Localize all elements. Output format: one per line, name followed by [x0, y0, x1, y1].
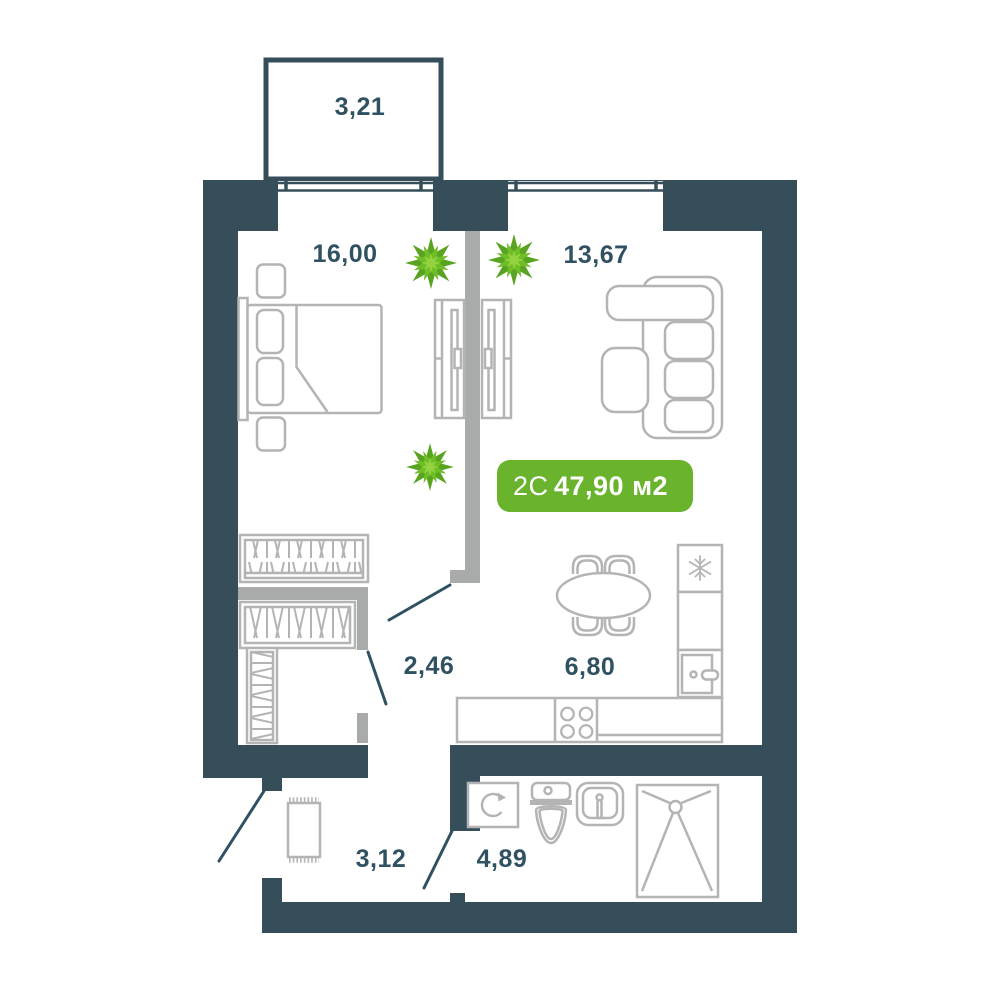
wardrobe-hatch [245, 540, 363, 573]
sofa-cushion [607, 286, 713, 320]
toilet [530, 783, 572, 843]
oven-handle [702, 671, 718, 680]
dining-set [557, 556, 650, 635]
hallway-area-label: 3,12 [356, 845, 407, 873]
window [278, 181, 433, 231]
nightstand [257, 265, 285, 298]
nightstand [257, 418, 285, 451]
closet-wall-top [238, 587, 368, 600]
shower-drain-icon [670, 801, 682, 813]
closet-wall-right [357, 600, 368, 650]
living-area-label: 13,67 [563, 241, 628, 269]
wall-left [203, 180, 238, 778]
wardrobe-hatch [251, 652, 273, 740]
sofa-cushion [665, 400, 713, 432]
wall-bathroom-top [450, 745, 762, 776]
chair [573, 556, 602, 574]
cabinet-handle [485, 349, 492, 368]
ottoman [602, 348, 648, 412]
closet-door-line [368, 652, 386, 704]
wardrobe-bedroom [240, 535, 368, 582]
floor-plan: 3,21 16,00 13,67 2,46 6,80 3,12 4,89 2С … [0, 0, 1000, 1000]
fridge [678, 545, 722, 592]
closet-wall-stub [357, 713, 368, 743]
bedroom-area-label: 16,00 [312, 240, 377, 268]
kitchen-area-label: 6,80 [565, 653, 616, 681]
svg-text:2С 47,90 м2: 2С 47,90 м2 [513, 471, 668, 501]
plant-icon [488, 234, 540, 286]
cabinet-partition-right [482, 300, 511, 418]
badge-unit-type: 2С [513, 471, 549, 501]
entrance-door-line [219, 791, 264, 861]
corridor-area-label: 2,46 [404, 652, 455, 680]
bathroom-area-label: 4,89 [477, 845, 528, 873]
oven-unit [678, 650, 722, 697]
wall-right [762, 180, 797, 933]
wardrobe-hatch [245, 607, 350, 643]
chair [605, 556, 634, 574]
washing-machine [468, 783, 518, 827]
total-area-badge: 2С 47,90 м2 [497, 460, 693, 512]
entrance-door-jamb [262, 778, 282, 791]
bathroom-door-line [424, 831, 452, 888]
rug [288, 800, 320, 860]
oven-knob [691, 672, 697, 678]
kitchen-cabinet [678, 592, 722, 650]
dining-table [557, 573, 650, 618]
sink [577, 783, 623, 825]
pillow [257, 310, 283, 353]
balcony-area-label: 3,21 [335, 93, 386, 121]
shower [637, 785, 718, 897]
headboard [239, 298, 248, 420]
wall-hallway-top [203, 745, 368, 778]
pillow [257, 358, 283, 405]
plant-icon [406, 443, 454, 491]
plant-icon [405, 237, 457, 289]
cabinet-partition-left [435, 300, 464, 418]
sofa-cushion [665, 361, 713, 398]
bathroom-door-jamb [450, 893, 465, 902]
wall-bottom-step [262, 878, 282, 904]
wall-bottom [262, 902, 797, 933]
chair [573, 617, 602, 635]
kitchen-counter [457, 698, 722, 742]
window [508, 181, 663, 231]
bedroom-door-line [389, 585, 450, 620]
toilet-button [545, 787, 552, 794]
chair [605, 617, 634, 635]
sofa-cushion [665, 322, 713, 359]
bed [239, 298, 382, 420]
toilet-seat-bar [530, 800, 572, 805]
badge-total-area: 47,90 м2 [554, 471, 668, 501]
wardrobe-closet [240, 602, 355, 743]
sink-faucet [598, 800, 602, 818]
cabinet-handle [455, 349, 462, 368]
furniture [239, 265, 723, 898]
